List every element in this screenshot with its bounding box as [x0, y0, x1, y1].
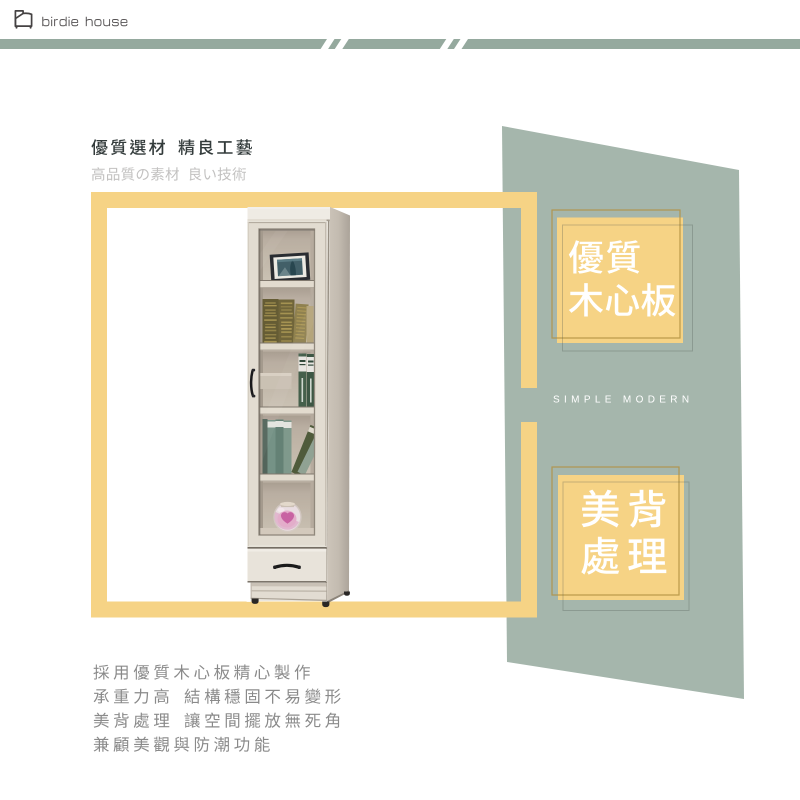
- svg-text:SIMPLE MODERN: SIMPLE MODERN: [553, 395, 693, 406]
